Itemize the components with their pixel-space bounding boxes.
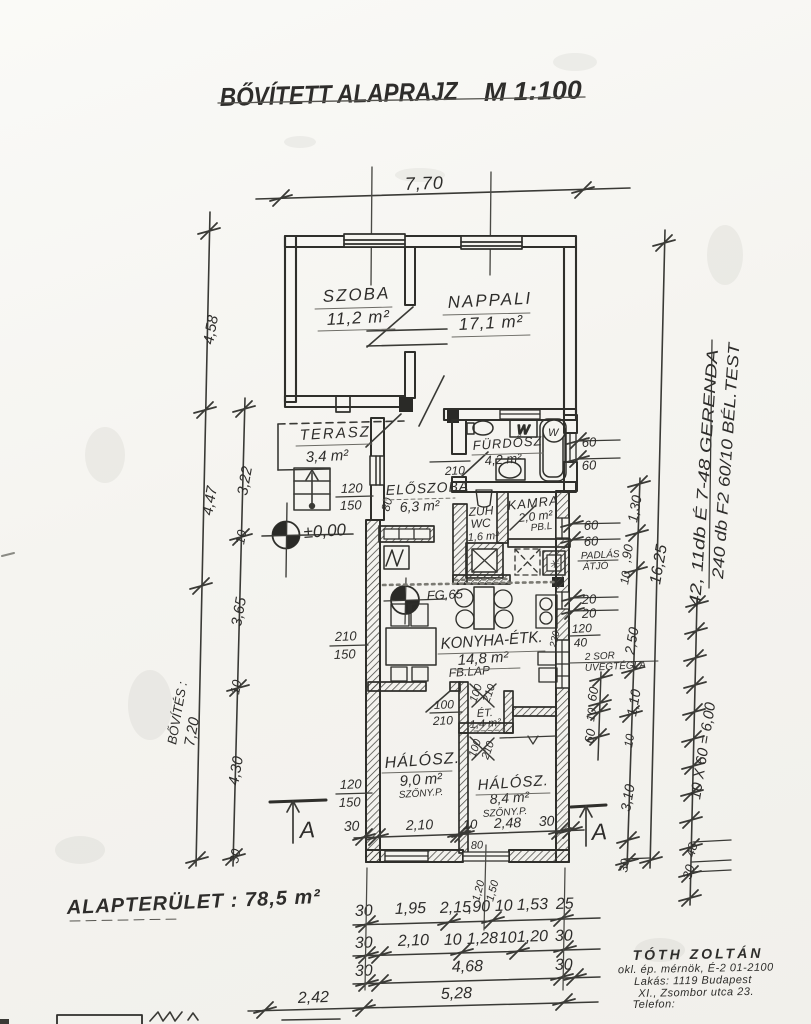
svg-text:30: 30 [355,962,373,980]
svg-text:3,65: 3,65 [228,595,250,627]
svg-text:7,70: 7,70 [404,173,444,194]
svg-text:100: 100 [434,697,455,712]
svg-text:FG,65: FG,65 [426,586,464,603]
svg-text:A: A [297,816,316,843]
svg-text:10: 10 [227,678,244,696]
svg-text:210: 210 [444,463,466,478]
svg-text:1,28: 1,28 [467,930,499,948]
svg-text:3,10: 3,10 [617,783,638,813]
svg-text:120: 120 [340,776,363,792]
svg-text:1,20: 1,20 [517,928,549,946]
svg-text:60: 60 [584,685,601,703]
svg-text:10: 10 [495,897,513,915]
svg-text:NAPPALI: NAPPALI [447,289,532,312]
svg-text:210: 210 [334,628,358,644]
svg-text:10 X 60 = 6,00: 10 X 60 = 6,00 [687,701,719,801]
svg-text:3,22: 3,22 [234,464,256,496]
svg-text:2,10: 2,10 [397,932,430,950]
svg-text:Telefon:: Telefon: [632,998,675,1011]
svg-text:FB.LAP: FB.LAP [448,663,490,680]
svg-text:30: 30 [344,817,360,834]
svg-text:60: 60 [583,533,599,549]
svg-text:30: 30 [539,812,555,829]
svg-text:5,28: 5,28 [441,985,473,1003]
svg-text:2,42: 2,42 [297,989,330,1007]
svg-text:120: 120 [341,480,364,496]
svg-text:M 1:100: M 1:100 [483,74,582,107]
svg-text:3,4 m²: 3,4 m² [305,447,349,466]
svg-text:120: 120 [571,621,592,636]
svg-text:FÜRDŐSZ: FÜRDŐSZ [472,433,543,453]
svg-text:150: 150 [340,497,363,513]
svg-text:ALAPTERÜLET : 78,5 m²: ALAPTERÜLET : 78,5 m² [65,885,321,919]
svg-text:1,95: 1,95 [395,900,427,918]
svg-text:A: A [589,818,608,845]
svg-text:210: 210 [432,713,454,728]
svg-text:60: 60 [583,517,599,533]
svg-text:10: 10 [463,816,479,832]
svg-text:4,30: 4,30 [225,754,247,786]
svg-text:150: 150 [339,794,362,810]
svg-text:4,2 m²: 4,2 m² [484,450,522,468]
svg-text:80: 80 [471,839,485,852]
svg-text:WC: WC [470,516,491,531]
svg-text:30: 30 [355,934,373,952]
svg-text:4,58: 4,58 [200,313,222,345]
svg-text:10: 10 [444,931,462,949]
svg-text:1,53: 1,53 [517,896,549,914]
svg-text:8,4 m²: 8,4 m² [489,788,531,807]
svg-text:TERASZ: TERASZ [299,423,371,444]
svg-text:10: 10 [499,929,517,947]
svg-text:60: 60 [581,457,597,473]
svg-text:,90: ,90 [468,898,491,916]
svg-text:,90: ,90 [618,542,636,563]
svg-text:PB.L: PB.L [530,521,553,534]
svg-text:1,6 m²: 1,6 m² [467,530,499,544]
svg-text:16,25: 16,25 [647,543,671,585]
svg-text:40: 40 [573,635,587,650]
svg-text:W: W [548,427,560,439]
svg-text:±0,00: ±0,00 [303,520,347,542]
svg-text:7,20: 7,20 [181,715,203,747]
svg-text:1,10: 1,10 [623,688,644,718]
svg-text:HÁLÓSZ.: HÁLÓSZ. [384,748,461,772]
svg-text:11,2 m²: 11,2 m² [326,307,391,329]
svg-text:2,48: 2,48 [493,814,522,831]
svg-text:10: 10 [621,733,637,749]
svg-text:30: 30 [355,902,373,920]
svg-text:10: 10 [617,570,633,586]
svg-text:48: 48 [682,840,700,859]
svg-text:TÓTH ZOLTÁN: TÓTH ZOLTÁN [632,944,763,963]
svg-text:60: 60 [581,727,598,745]
svg-text:10: 10 [583,707,599,723]
svg-text:BŐVÍTETT ALAPRAJZ: BŐVÍTETT ALAPRAJZ [219,76,459,112]
svg-text:1,4 m²: 1,4 m² [469,717,501,731]
svg-text:150: 150 [334,646,357,662]
svg-text:60: 60 [581,434,597,450]
svg-text:SZOBA: SZOBA [322,283,391,306]
svg-text:2,50: 2,50 [621,626,642,657]
svg-text:ELŐSZOBA: ELŐSZOBA [385,478,469,498]
svg-text:17,1 m²: 17,1 m² [458,312,524,334]
svg-text:2,15: 2,15 [439,899,472,917]
svg-text:2,10: 2,10 [405,816,434,833]
svg-text:4,68: 4,68 [452,958,484,976]
svg-text:4,47: 4,47 [199,484,221,516]
svg-text:1,30: 1,30 [624,494,645,524]
svg-text:80: 80 [378,496,395,513]
svg-text:30: 30 [616,858,632,874]
